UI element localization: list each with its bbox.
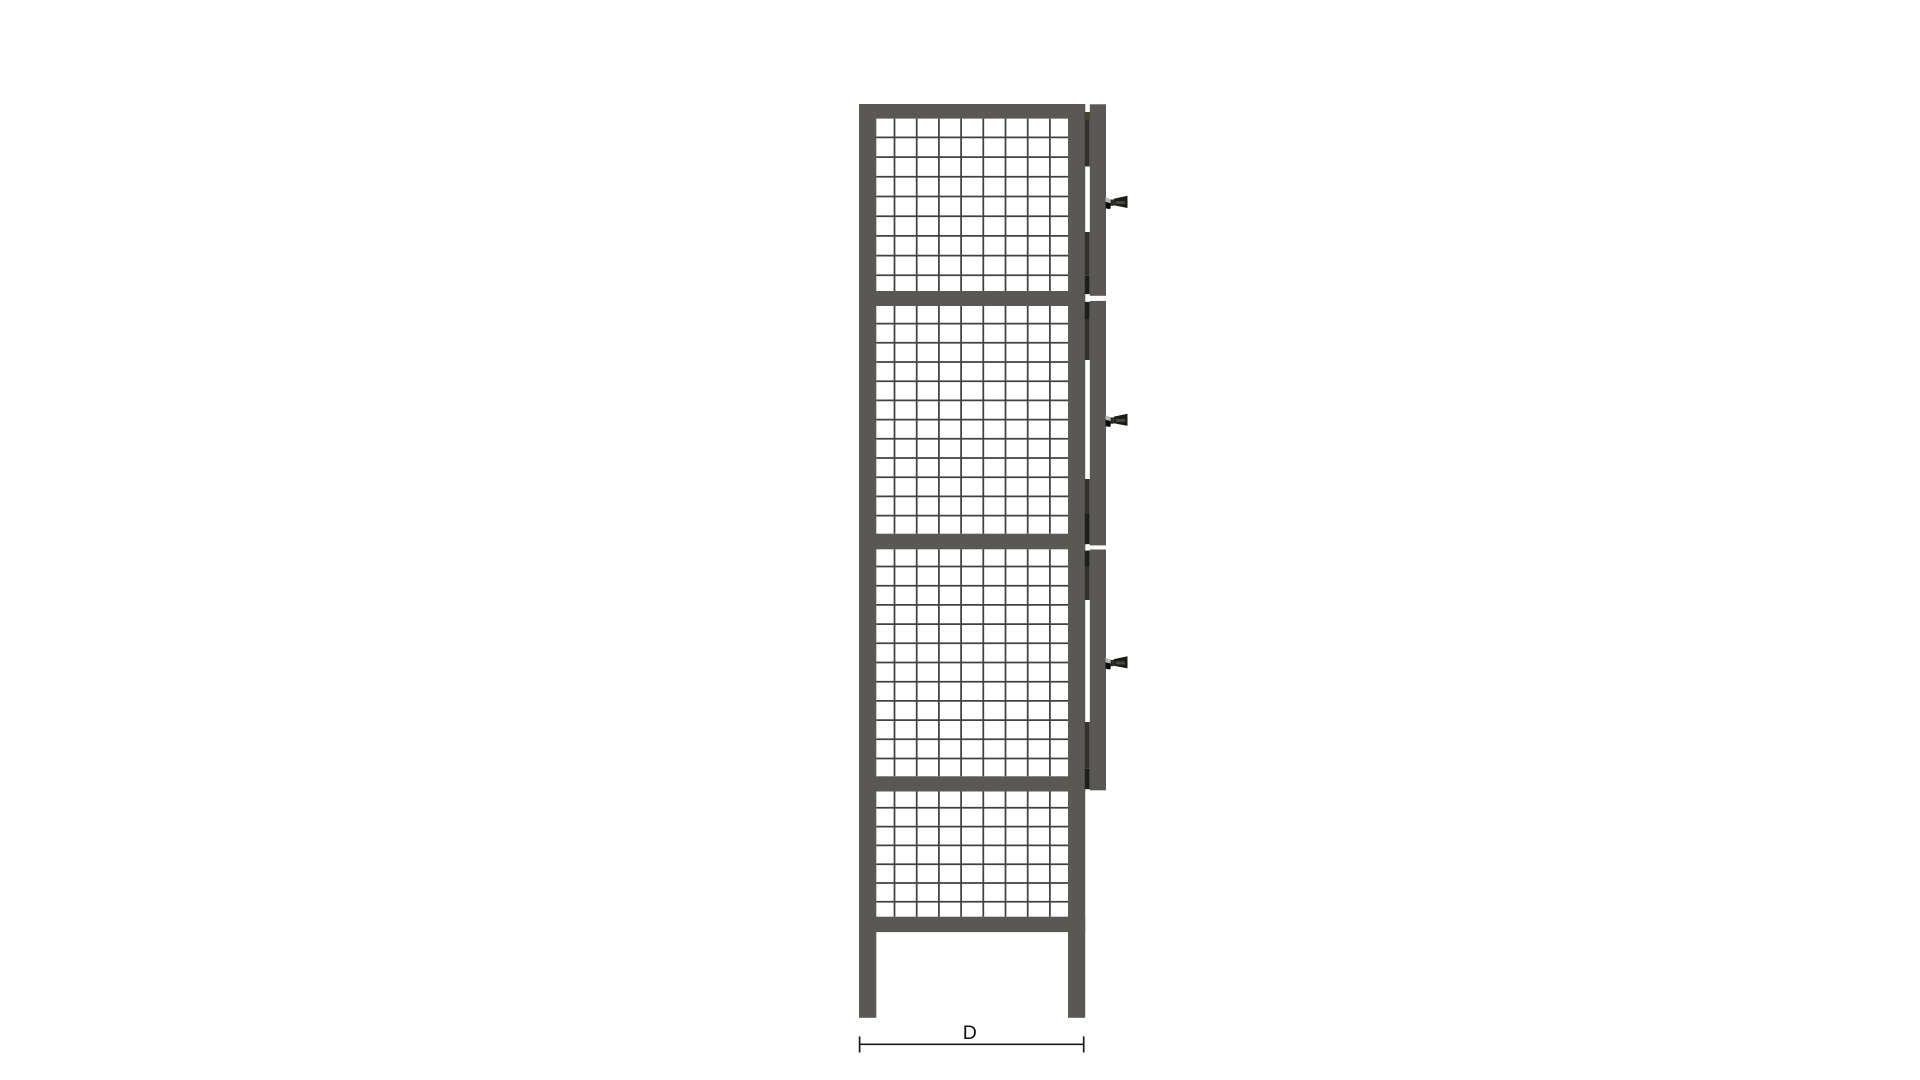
svg-text:D: D [963,1022,977,1044]
